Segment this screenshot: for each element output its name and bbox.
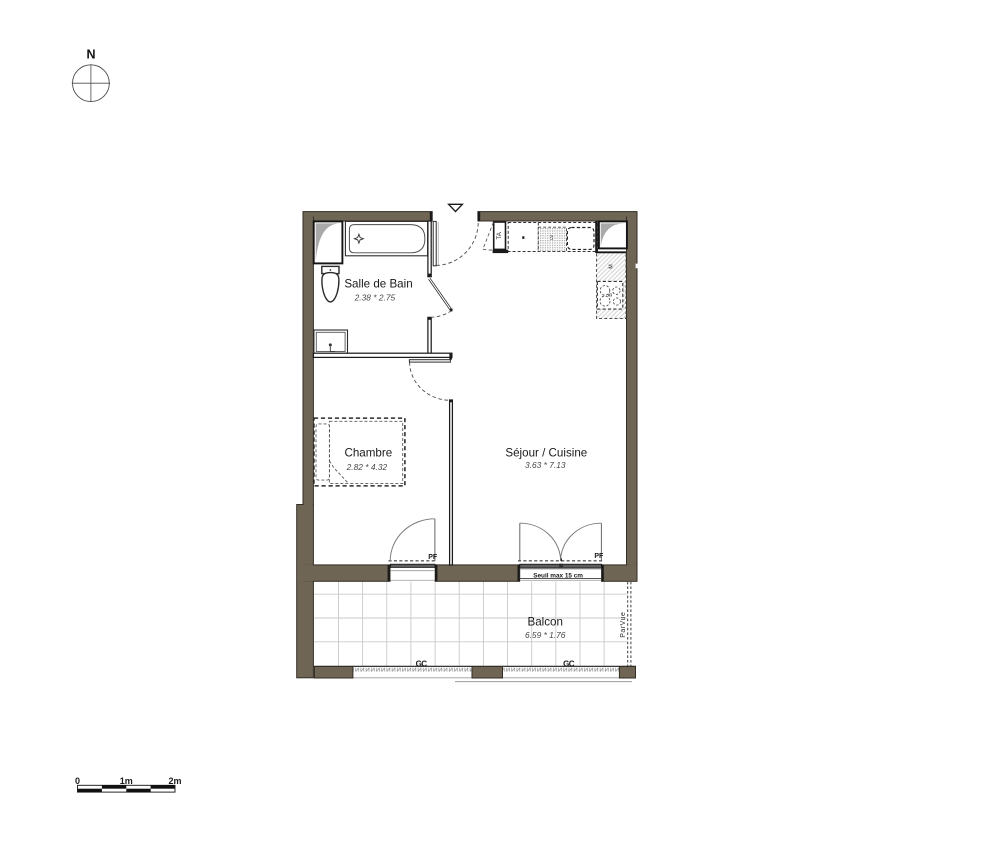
svg-text:Chambre: Chambre <box>344 446 392 459</box>
svg-text:PF: PF <box>594 553 604 560</box>
svg-text:B: B <box>608 293 614 297</box>
svg-text:Balcon: Balcon <box>527 615 562 628</box>
svg-text:2m: 2m <box>168 776 181 786</box>
svg-text:Seuil max 15 cm: Seuil max 15 cm <box>533 573 583 580</box>
svg-text:3.63 * 7.13: 3.63 * 7.13 <box>525 460 566 470</box>
svg-text:Salle de Bain: Salle de Bain <box>344 277 412 290</box>
svg-text:2.38 * 2.75: 2.38 * 2.75 <box>354 293 396 303</box>
svg-text:ParVue: ParVue <box>620 612 627 638</box>
svg-text:PF: PF <box>428 554 438 561</box>
svg-text:TA: TA <box>496 231 503 239</box>
svg-text:M: M <box>608 264 614 268</box>
svg-text:1m: 1m <box>120 776 133 786</box>
svg-text:6.59 * 1.76: 6.59 * 1.76 <box>525 630 566 640</box>
svg-text:Séjour / Cuisine: Séjour / Cuisine <box>505 446 587 459</box>
svg-text:N: N <box>86 48 95 62</box>
svg-text:2.82 * 4.32: 2.82 * 4.32 <box>346 462 388 472</box>
svg-text:GC: GC <box>563 659 575 668</box>
svg-text:GC: GC <box>416 659 428 668</box>
svg-text:0: 0 <box>75 776 80 786</box>
